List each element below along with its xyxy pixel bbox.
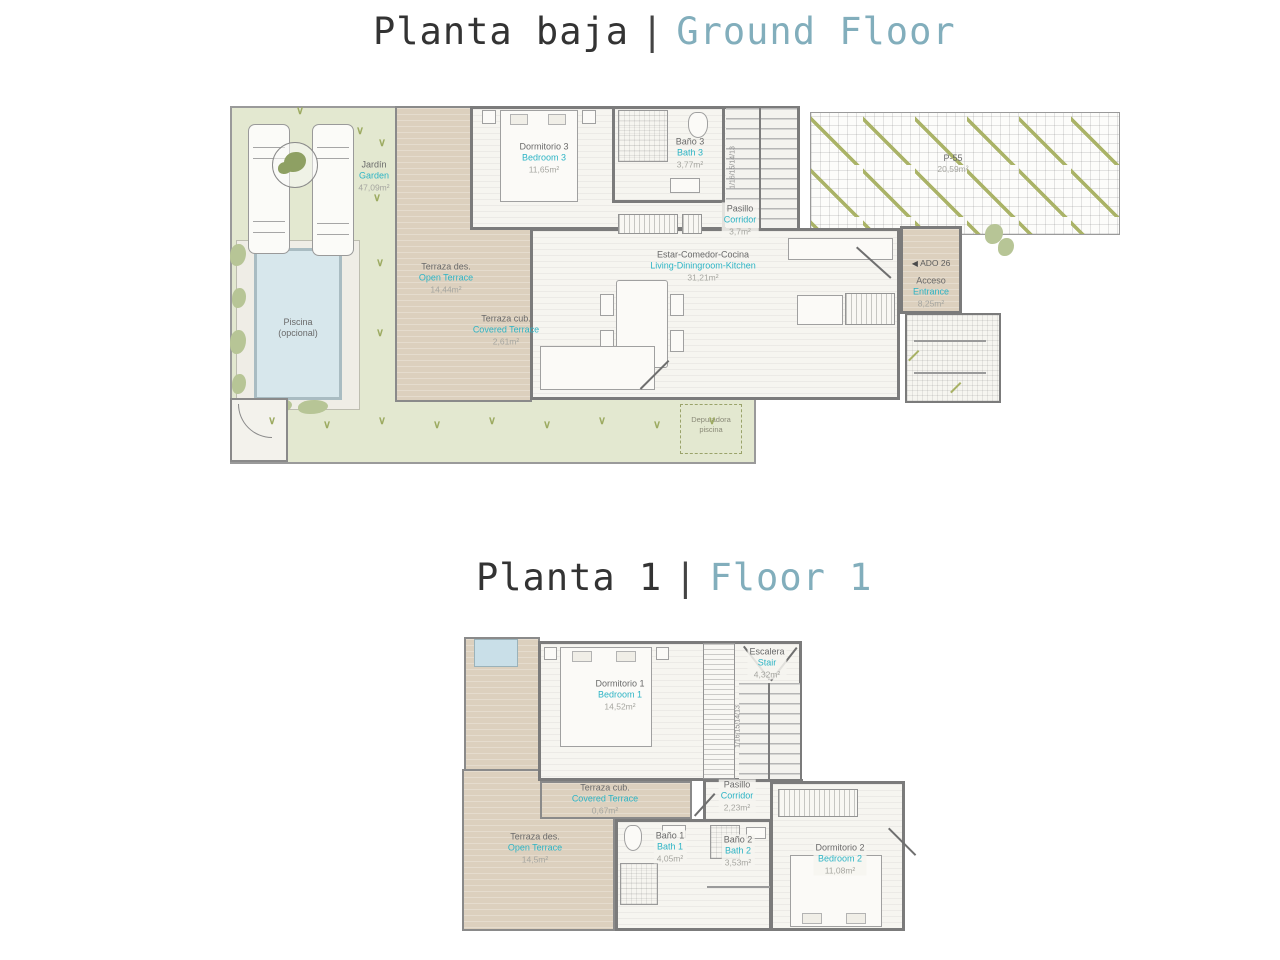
open-terrace-area-value: 14,44m²	[419, 284, 473, 295]
grass-icon	[296, 106, 304, 117]
garden-area-value: 47,09m²	[358, 182, 389, 193]
title-first-es: Planta 1	[476, 556, 662, 599]
wall	[612, 106, 615, 202]
corridor-f1-area-value: 2,23m²	[721, 802, 754, 813]
title-first-en: Floor 1	[710, 556, 873, 599]
wardrobe-unit	[682, 214, 702, 234]
title-ground-separator: |	[641, 10, 664, 53]
pool-pump-box: Depuradora piscina	[680, 404, 742, 454]
bedroom2-name-es: Dormitorio 2	[815, 842, 864, 853]
entrance-label: Acceso Entrance 8,25m²	[913, 275, 949, 308]
nightstand	[582, 110, 596, 124]
pillow	[616, 651, 636, 662]
chair	[670, 294, 684, 316]
corridor-gf-area-value: 3,7m²	[724, 226, 757, 237]
bath3-name-es: Baño 3	[676, 136, 705, 147]
shower-bath1	[620, 863, 658, 905]
grass-icon	[356, 126, 364, 137]
corridor-gf-name-es: Pasillo	[724, 203, 757, 214]
clothesline-icon	[914, 372, 986, 374]
car-rear-window	[317, 223, 349, 235]
bath2-name-en: Bath 2	[724, 846, 753, 857]
covered-terrace-f1-label: Terraza cub. Covered Terrace 0,67m²	[572, 782, 638, 815]
stair-center-line	[759, 108, 761, 228]
sofa	[540, 346, 655, 390]
bath3-label: Baño 3 Bath 3 3,77m²	[676, 136, 705, 169]
nightstand	[656, 647, 669, 660]
stair-step-numbers: 1/16/15/14/13	[730, 123, 737, 213]
wall	[612, 200, 725, 203]
living-label: Estar-Comedor-Cocina Living-Diningroom-K…	[650, 249, 756, 282]
bath2-name-es: Baño 2	[724, 834, 753, 845]
grass-icon	[376, 328, 384, 339]
ado-marker: ADO 26	[912, 258, 951, 268]
grass-icon	[323, 420, 331, 431]
living-area-value: 31,21m²	[650, 272, 756, 283]
car-icon	[312, 124, 354, 256]
bath1-area-value: 4,05m²	[656, 853, 685, 864]
open-terrace-name-en: Open Terrace	[419, 273, 473, 284]
bedroom2-name-en: Bedroom 2	[815, 854, 864, 865]
grass-icon	[433, 420, 441, 431]
living-name-en: Living-Diningroom-Kitchen	[650, 261, 756, 272]
covered-terrace-label: Terraza cub. Covered Terrace 2,61m²	[473, 313, 539, 346]
bath2-label: Baño 2 Bath 2 3,53m²	[722, 834, 755, 867]
covered-terrace-f1-name-en: Covered Terrace	[572, 794, 638, 805]
kitchen-counter	[788, 238, 893, 260]
corridor-f1-name-es: Pasillo	[721, 779, 754, 790]
grass-icon	[598, 416, 606, 427]
corridor-f1-label: Pasillo Corridor 2,23m²	[719, 779, 756, 812]
stair-label: Escalera Stair 4,32m²	[747, 646, 786, 679]
open-terrace-label: Terraza des. Open Terrace 14,44m²	[419, 261, 473, 294]
garden-name-en: Garden	[358, 171, 389, 182]
stair-area-value: 4,32m²	[749, 669, 784, 680]
bath1-name-es: Baño 1	[656, 830, 685, 841]
garden-label: Jardín Garden 47,09m²	[358, 159, 389, 192]
covered-terrace-f1-area-value: 0,67m²	[572, 805, 638, 816]
pillow	[572, 651, 592, 662]
bedroom3-name-es: Dormitorio 3	[519, 141, 568, 152]
nightstand	[544, 647, 557, 660]
covered-terrace-name-en: Covered Terrace	[473, 325, 539, 336]
bath3-area-value: 3,77m²	[676, 159, 705, 170]
grass-icon	[373, 193, 381, 204]
kitchen-appliance	[845, 293, 895, 325]
covered-terrace-name-es: Terraza cub.	[473, 313, 539, 324]
first-floor-plan: 1/16/15/14/13 Dormitorio 1 Bedroom 1 14,…	[460, 633, 908, 933]
car-rear-window	[253, 221, 285, 233]
stair-name-es: Escalera	[749, 646, 784, 657]
bath3-name-en: Bath 3	[676, 148, 705, 159]
living-name-es: Estar-Comedor-Cocina	[650, 249, 756, 260]
title-ground-es: Planta baja	[373, 10, 629, 53]
stair-name-en: Stair	[749, 658, 784, 669]
bedroom3-label: Dormitorio 3 Bedroom 3 11,65m²	[519, 141, 568, 174]
first-floor-title: Planta 1|Floor 1	[476, 556, 872, 599]
bush-icon	[998, 238, 1014, 256]
pool-name-es: Piscina	[278, 317, 318, 328]
grass-icon	[708, 416, 716, 427]
parking-code: P-55	[937, 153, 968, 164]
grass-icon	[543, 420, 551, 431]
nightstand	[482, 110, 496, 124]
ground-floor-plan: 1/16/15/14/13 Depuradora piscina	[228, 98, 1123, 470]
garden-name-es: Jardín	[358, 159, 389, 170]
wardrobe-bedroom2	[778, 789, 858, 817]
bedroom1-name-es: Dormitorio 1	[595, 678, 644, 689]
wall	[707, 886, 770, 888]
shower-bath3	[618, 110, 668, 162]
open-terrace-name-es: Terraza des.	[419, 261, 473, 272]
bedroom2-label: Dormitorio 2 Bedroom 2 11,08m²	[813, 842, 866, 875]
car-windshield	[317, 147, 349, 159]
bedroom3-name-en: Bedroom 3	[519, 153, 568, 164]
open-terrace-f1-area-value: 14,5m²	[508, 854, 562, 865]
covered-terrace-f1-name-es: Terraza cub.	[572, 782, 638, 793]
ground-floor-title: Planta baja|Ground Floor	[373, 10, 956, 53]
bedroom1-label: Dormitorio 1 Bedroom 1 14,52m²	[595, 678, 644, 711]
skylight	[474, 639, 518, 667]
open-terrace-f1-name-es: Terraza des.	[508, 831, 562, 842]
entrance-name-en: Entrance	[913, 287, 949, 298]
corridor-gf-name-en: Corridor	[724, 215, 757, 226]
bath1-label: Baño 1 Bath 1 4,05m²	[654, 830, 687, 863]
pool-label: Piscina (opcional)	[278, 317, 318, 340]
entrance-area-value: 8,25m²	[913, 298, 949, 309]
stair-step-numbers: 1/16/15/14/13	[735, 682, 742, 772]
grass-icon	[378, 138, 386, 149]
wardrobe-unit	[618, 214, 678, 234]
bedroom1-name-en: Bedroom 1	[595, 690, 644, 701]
parking-label: P-55 20,59m²	[937, 153, 968, 175]
pillow	[802, 913, 822, 924]
pillow	[510, 114, 528, 125]
grass-icon	[378, 416, 386, 427]
corridor-gf-label: Pasillo Corridor 3,7m²	[722, 202, 759, 237]
grass-icon	[653, 420, 661, 431]
stair-center-line	[768, 683, 770, 779]
covered-terrace-area-value: 2,61m²	[473, 336, 539, 347]
parking-area-value: 20,59m²	[937, 164, 968, 175]
grass-icon	[488, 416, 496, 427]
clothesline-icon	[914, 340, 986, 342]
title-ground-en: Ground Floor	[676, 10, 955, 53]
sink-bath3	[670, 178, 700, 193]
kitchen-island	[797, 295, 843, 325]
floorplan-sheet: Planta baja|Ground Floor Planta 1|Floor …	[0, 0, 1280, 960]
corridor-f1-name-en: Corridor	[721, 791, 754, 802]
entrance-name-es: Acceso	[913, 275, 949, 286]
bedroom2-area-value: 11,08m²	[815, 865, 864, 876]
bedroom1-area-value: 14,52m²	[595, 701, 644, 712]
open-terrace-f1-label: Terraza des. Open Terrace 14,5m²	[508, 831, 562, 864]
bath2-area-value: 3,53m²	[724, 857, 753, 868]
bath1-name-en: Bath 1	[656, 842, 685, 853]
chair	[670, 330, 684, 352]
wardrobe-bedroom1	[703, 643, 735, 779]
bedroom3-area-value: 11,65m²	[519, 164, 568, 175]
chair	[600, 294, 614, 316]
pillow	[846, 913, 866, 924]
grass-icon	[268, 416, 276, 427]
title-first-separator: |	[674, 556, 697, 599]
pillow	[548, 114, 566, 125]
pool-optional-note: (opcional)	[278, 328, 318, 339]
grass-icon	[376, 258, 384, 269]
toilet-bath3	[688, 112, 708, 138]
open-terrace-f1-name-en: Open Terrace	[508, 843, 562, 854]
toilet-bath1	[624, 825, 642, 851]
